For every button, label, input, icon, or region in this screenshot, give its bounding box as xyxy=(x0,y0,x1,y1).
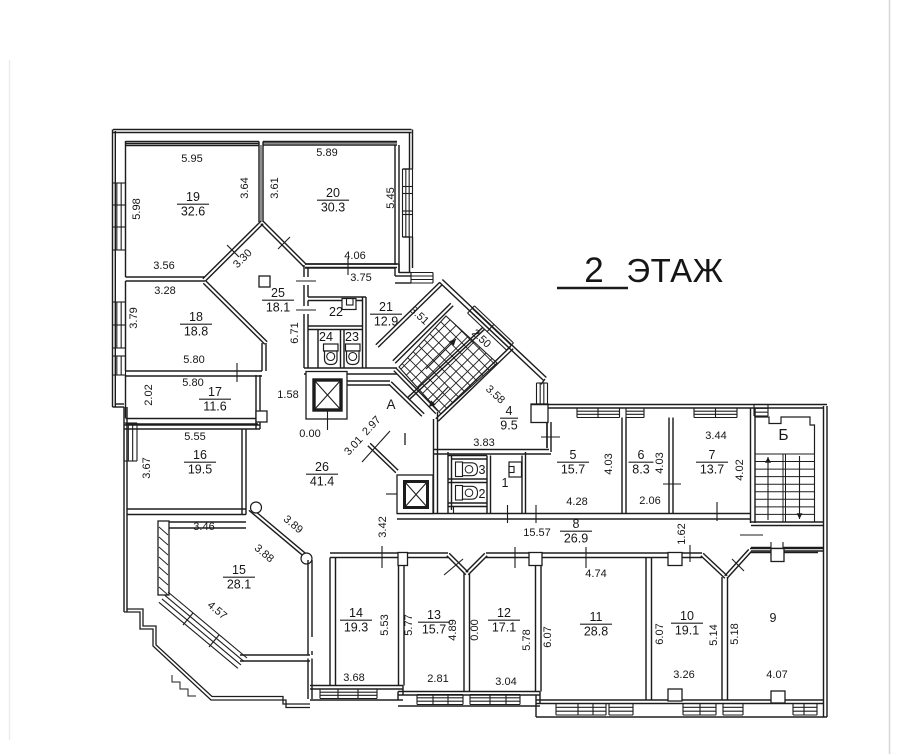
svg-text:19.3: 19.3 xyxy=(344,621,368,635)
svg-text:9: 9 xyxy=(770,611,777,625)
svg-text:1: 1 xyxy=(502,476,509,490)
svg-text:4: 4 xyxy=(506,404,513,418)
svg-text:5.53: 5.53 xyxy=(379,614,391,635)
svg-text:19.5: 19.5 xyxy=(188,463,212,477)
svg-text:17.1: 17.1 xyxy=(492,621,516,635)
svg-text:7: 7 xyxy=(709,448,716,462)
svg-text:28.1: 28.1 xyxy=(227,578,251,592)
svg-text:20: 20 xyxy=(326,186,340,200)
svg-text:6.07: 6.07 xyxy=(654,623,666,644)
svg-text:4.89: 4.89 xyxy=(447,619,459,640)
svg-text:0.00: 0.00 xyxy=(299,428,320,440)
svg-text:4.06: 4.06 xyxy=(344,250,365,262)
svg-text:3.04: 3.04 xyxy=(495,676,516,688)
svg-text:4.28: 4.28 xyxy=(566,496,587,508)
svg-text:11.6: 11.6 xyxy=(203,400,226,414)
svg-text:15: 15 xyxy=(232,563,246,577)
svg-text:12: 12 xyxy=(497,606,511,620)
svg-text:4.02: 4.02 xyxy=(734,459,746,480)
svg-text:5.80: 5.80 xyxy=(183,354,204,366)
svg-text:2.02: 2.02 xyxy=(143,384,155,405)
svg-text:3.64: 3.64 xyxy=(239,177,251,198)
svg-text:21: 21 xyxy=(379,300,393,314)
svg-text:3.68: 3.68 xyxy=(343,672,364,684)
svg-text:8.3: 8.3 xyxy=(632,463,649,477)
svg-text:1.58: 1.58 xyxy=(277,389,298,401)
svg-text:6.07: 6.07 xyxy=(542,626,554,647)
svg-text:2: 2 xyxy=(584,251,603,290)
svg-text:41.4: 41.4 xyxy=(310,475,334,489)
svg-text:14: 14 xyxy=(349,606,363,620)
svg-text:8: 8 xyxy=(573,517,580,531)
svg-text:4.03: 4.03 xyxy=(603,453,615,474)
svg-text:5.45: 5.45 xyxy=(385,187,397,208)
svg-text:17: 17 xyxy=(208,385,222,399)
svg-text:1.62: 1.62 xyxy=(676,523,688,544)
svg-text:11: 11 xyxy=(590,610,603,624)
svg-text:13.7: 13.7 xyxy=(700,463,724,477)
svg-text:5.78: 5.78 xyxy=(521,629,533,650)
svg-text:3.75: 3.75 xyxy=(350,272,371,284)
svg-text:6: 6 xyxy=(638,448,645,462)
svg-text:3.61: 3.61 xyxy=(269,177,281,198)
svg-text:30.3: 30.3 xyxy=(321,201,345,215)
svg-text:22: 22 xyxy=(329,305,343,319)
svg-text:4.07: 4.07 xyxy=(766,669,787,681)
svg-text:25: 25 xyxy=(271,286,285,300)
svg-text:5.98: 5.98 xyxy=(131,198,143,219)
svg-text:26.9: 26.9 xyxy=(564,532,588,546)
svg-text:5.77: 5.77 xyxy=(403,614,415,635)
svg-text:19.1: 19.1 xyxy=(675,624,699,638)
svg-text:0.00: 0.00 xyxy=(469,619,481,640)
svg-text:3.26: 3.26 xyxy=(673,669,694,681)
svg-text:15.57: 15.57 xyxy=(523,527,551,539)
svg-text:4.74: 4.74 xyxy=(585,568,606,580)
svg-text:18: 18 xyxy=(189,310,203,324)
svg-text:9.5: 9.5 xyxy=(500,419,517,433)
svg-text:3.83: 3.83 xyxy=(473,437,494,449)
svg-text:5.18: 5.18 xyxy=(729,623,741,644)
svg-text:3.44: 3.44 xyxy=(705,430,726,442)
svg-text:ЭТАЖ: ЭТАЖ xyxy=(626,252,723,289)
svg-text:2.81: 2.81 xyxy=(427,673,448,685)
svg-text:2: 2 xyxy=(479,487,486,501)
svg-text:Б: Б xyxy=(778,427,788,444)
svg-text:А: А xyxy=(386,397,395,412)
svg-text:15.7: 15.7 xyxy=(422,623,446,637)
svg-text:3.42: 3.42 xyxy=(377,516,389,537)
svg-text:26: 26 xyxy=(315,460,329,474)
svg-text:3.28: 3.28 xyxy=(154,285,175,297)
svg-text:4.03: 4.03 xyxy=(654,452,666,473)
svg-text:5.55: 5.55 xyxy=(184,431,205,443)
svg-text:16: 16 xyxy=(193,448,207,462)
svg-text:2.06: 2.06 xyxy=(639,495,660,507)
svg-text:15.7: 15.7 xyxy=(561,463,585,477)
svg-text:5.80: 5.80 xyxy=(182,377,203,389)
svg-text:3.79: 3.79 xyxy=(128,307,140,328)
svg-text:5: 5 xyxy=(570,448,577,462)
svg-text:18.8: 18.8 xyxy=(184,325,208,339)
svg-text:24: 24 xyxy=(319,330,333,344)
svg-text:6.71: 6.71 xyxy=(289,322,301,343)
svg-text:28.8: 28.8 xyxy=(584,625,608,639)
svg-text:5.89: 5.89 xyxy=(316,147,337,159)
svg-text:3: 3 xyxy=(479,463,486,477)
svg-text:18.1: 18.1 xyxy=(266,301,290,315)
svg-text:13: 13 xyxy=(427,608,441,622)
svg-text:3.67: 3.67 xyxy=(141,457,153,478)
svg-text:32.6: 32.6 xyxy=(181,205,205,219)
svg-text:23: 23 xyxy=(345,330,359,344)
svg-text:10: 10 xyxy=(680,609,694,623)
svg-text:3.46: 3.46 xyxy=(193,521,214,533)
svg-text:12.9: 12.9 xyxy=(374,315,398,329)
svg-text:19: 19 xyxy=(186,190,200,204)
svg-text:5.14: 5.14 xyxy=(708,624,720,645)
svg-text:3.56: 3.56 xyxy=(153,260,174,272)
svg-text:5.95: 5.95 xyxy=(181,153,202,165)
